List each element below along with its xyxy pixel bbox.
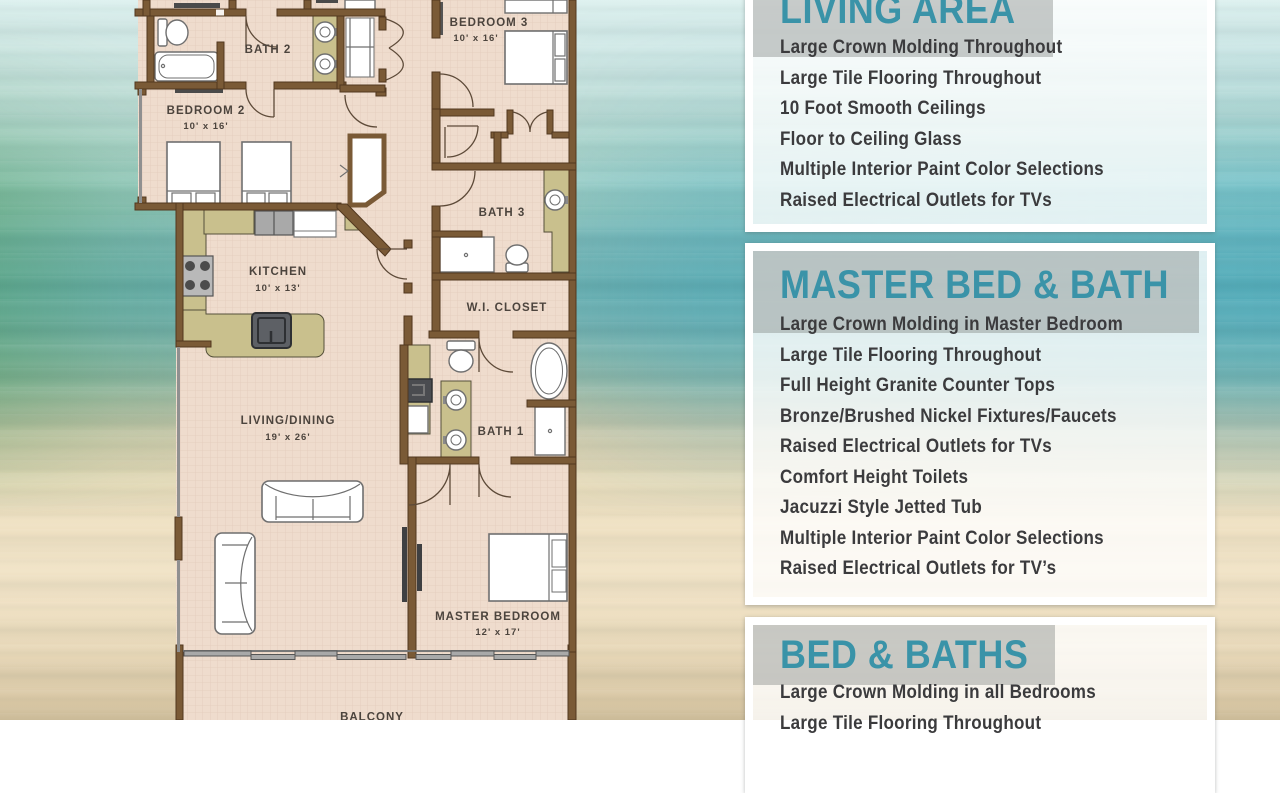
- svg-text:10' x 13': 10' x 13': [255, 283, 300, 294]
- svg-text:BATH 1: BATH 1: [478, 426, 525, 438]
- svg-text:MASTER BEDROOM: MASTER BEDROOM: [435, 611, 561, 623]
- svg-text:BATH 2: BATH 2: [245, 44, 292, 56]
- svg-text:KITCHEN: KITCHEN: [249, 266, 307, 278]
- svg-text:19' x 26': 19' x 26': [265, 432, 310, 443]
- svg-text:LIVING/DINING: LIVING/DINING: [241, 415, 336, 427]
- svg-text:BEDROOM 3: BEDROOM 3: [450, 17, 529, 29]
- svg-text:10' x 16': 10' x 16': [453, 33, 498, 44]
- svg-text:W.I. CLOSET: W.I. CLOSET: [467, 302, 548, 314]
- svg-text:BATH 3: BATH 3: [479, 207, 526, 219]
- svg-text:10' x 16': 10' x 16': [183, 121, 228, 132]
- svg-text:BEDROOM 2: BEDROOM 2: [167, 105, 246, 117]
- svg-text:BALCONY: BALCONY: [340, 712, 404, 721]
- svg-text:12' x 17': 12' x 17': [475, 627, 520, 638]
